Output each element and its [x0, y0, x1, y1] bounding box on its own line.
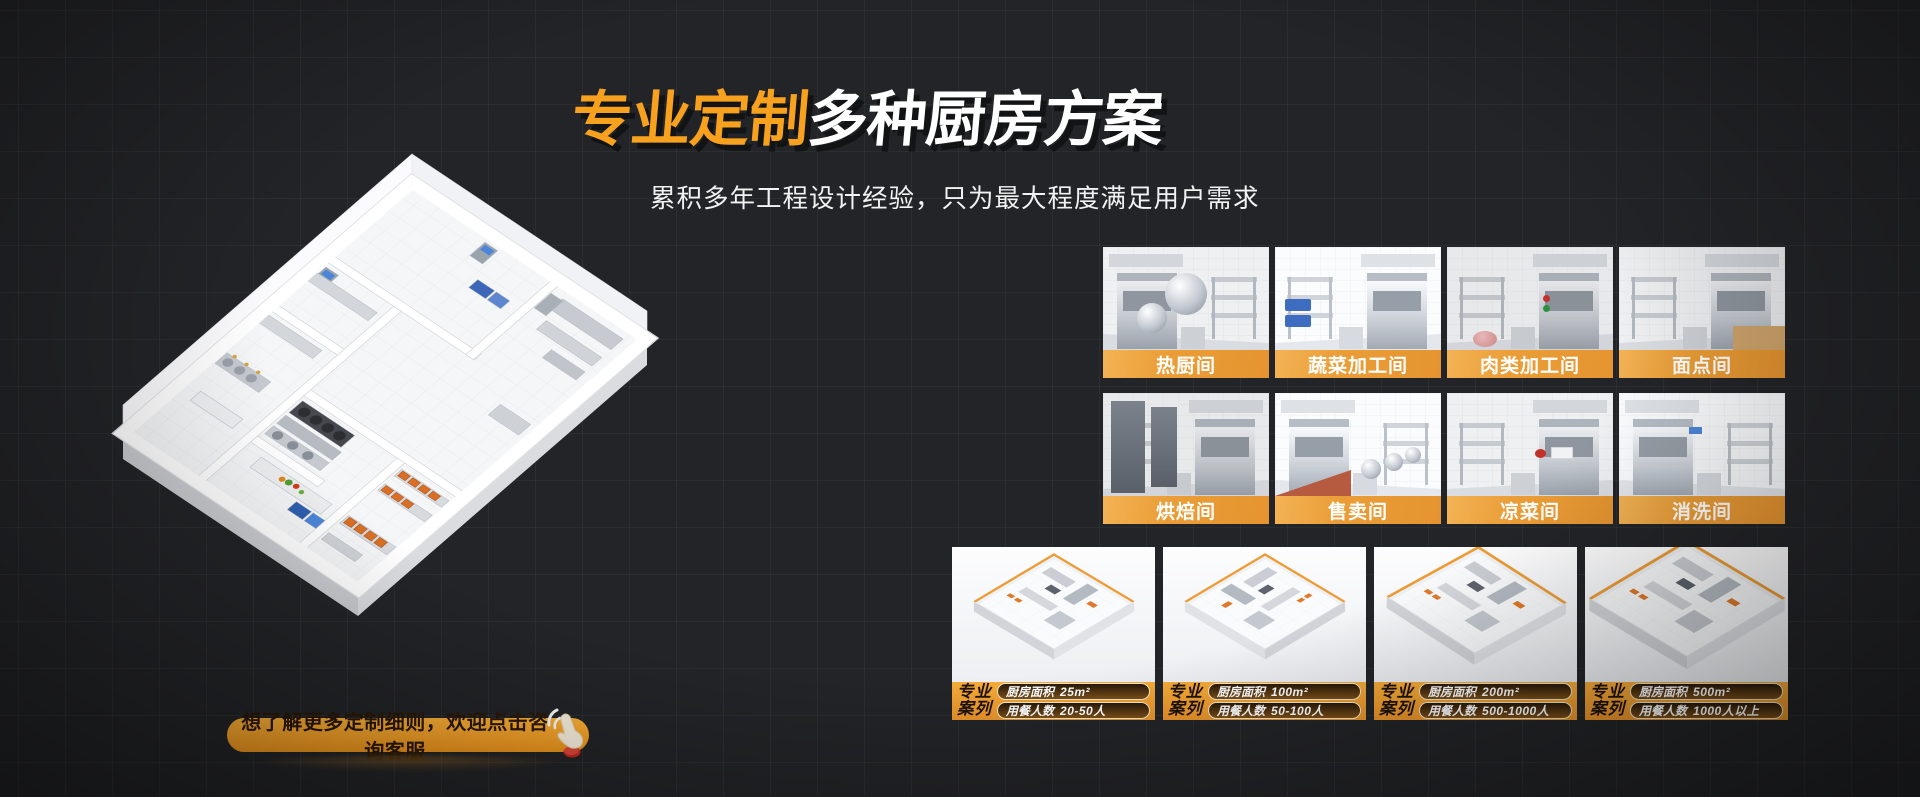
consult-cta-button[interactable]: 想了解更多定制细则，欢迎点击咨询客服 — [227, 718, 589, 752]
room-tile: 面点间 — [1619, 247, 1785, 378]
photo-accent — [1385, 453, 1403, 471]
photo-accent — [1165, 273, 1207, 315]
case-photo — [1374, 547, 1577, 682]
case-footer: 专业 案列 厨房面积200m² 用餐人数500-1000人 — [1374, 682, 1577, 720]
kitchen-floorplan-illustration — [102, 142, 672, 632]
case-card: 专业 案列 厨房面积100m² 用餐人数50-100人 — [1163, 547, 1366, 720]
room-tile-label: 消洗间 — [1619, 496, 1785, 524]
case-footer: 专业 案列 厨房面积100m² 用餐人数50-100人 — [1163, 682, 1366, 720]
photo-accent — [1361, 459, 1381, 479]
room-tile: 蔬菜加工间 — [1275, 247, 1441, 378]
promo-banner: 专业定制多种厨房方案 累积多年工程设计经验，只为最大程度满足用户需求 — [0, 0, 1920, 797]
room-tile: 肉类加工间 — [1447, 247, 1613, 378]
room-tile: 售卖间 — [1275, 393, 1441, 524]
room-tile-label: 热厨间 — [1103, 350, 1269, 378]
room-tile: 烘焙间 — [1103, 393, 1269, 524]
case-area-pill: 厨房面积100m² — [1208, 683, 1361, 700]
photo-accent — [1151, 407, 1177, 487]
case-footer: 专业 案列 厨房面积500m² 用餐人数1000人以上 — [1585, 682, 1788, 720]
case-area-pill: 厨房面积200m² — [1419, 683, 1572, 700]
case-diners-pill: 用餐人数500-1000人 — [1419, 702, 1572, 719]
photo-accent — [1551, 447, 1573, 459]
photo-accent — [1285, 299, 1311, 311]
case-area-pill: 厨房面积25m² — [997, 683, 1150, 700]
photo-accent — [1535, 449, 1546, 458]
case-badge: 专业 案列 — [1379, 684, 1414, 718]
room-tile-label: 烘焙间 — [1103, 496, 1269, 524]
case-photo — [1163, 547, 1366, 682]
room-tile-label: 肉类加工间 — [1447, 350, 1613, 378]
photo-accent — [1111, 401, 1145, 493]
room-tile: 热厨间 — [1103, 247, 1269, 378]
room-tile-label: 售卖间 — [1275, 496, 1441, 524]
case-footer: 专业 案列 厨房面积25m² 用餐人数20-50人 — [952, 682, 1155, 720]
room-tile-label: 面点间 — [1619, 350, 1785, 378]
case-badge: 专业 案列 — [957, 684, 992, 718]
case-card: 专业 案列 厨房面积25m² 用餐人数20-50人 — [952, 547, 1155, 720]
room-tile-label: 凉菜间 — [1447, 496, 1613, 524]
cta-reflection — [237, 756, 579, 772]
photo-accent — [1285, 315, 1311, 327]
photo-accent — [1543, 305, 1550, 312]
case-badge: 专业 案列 — [1590, 684, 1625, 718]
photo-accent — [1473, 331, 1497, 347]
case-card: 专业 案列 厨房面积500m² 用餐人数1000人以上 — [1585, 547, 1788, 720]
case-card: 专业 案列 厨房面积200m² 用餐人数500-1000人 — [1374, 547, 1577, 720]
page-title-rest: 多种厨房方案 — [805, 86, 1165, 153]
room-tile: 消洗间 — [1619, 393, 1785, 524]
case-badge: 专业 案列 — [1168, 684, 1203, 718]
room-tile-label: 蔬菜加工间 — [1275, 350, 1441, 378]
room-tile: 凉菜间 — [1447, 393, 1613, 524]
case-diners-pill: 用餐人数50-100人 — [1208, 702, 1361, 719]
case-photo — [952, 547, 1155, 682]
photo-accent — [1543, 295, 1550, 302]
photo-accent — [1733, 326, 1785, 350]
case-area-pill: 厨房面积500m² — [1630, 683, 1783, 700]
case-diners-pill: 用餐人数20-50人 — [997, 702, 1150, 719]
photo-accent — [1405, 447, 1421, 463]
case-diners-pill: 用餐人数1000人以上 — [1630, 702, 1783, 719]
photo-accent — [1137, 303, 1167, 333]
case-photo — [1585, 547, 1788, 682]
page-subtitle: 累积多年工程设计经验，只为最大程度满足用户需求 — [650, 178, 1260, 215]
photo-accent — [1689, 427, 1702, 434]
